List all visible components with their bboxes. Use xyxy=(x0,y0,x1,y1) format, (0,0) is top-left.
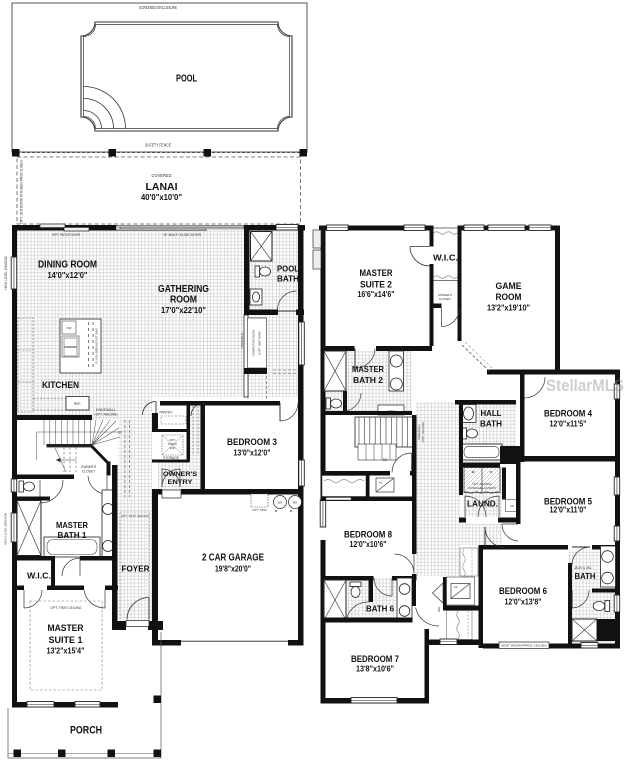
svg-text:OPT. TRAY CEILING: OPT. TRAY CEILING xyxy=(121,514,150,518)
svg-text:POOL: POOL xyxy=(176,73,197,85)
svg-text:BATH 1: BATH 1 xyxy=(58,530,87,540)
svg-text:OWNER'S: OWNER'S xyxy=(81,465,97,469)
svg-text:ROOM: ROOM xyxy=(496,292,522,302)
svg-text:SCREENED ENCLOSURE: SCREENED ENCLOSURE xyxy=(139,5,177,10)
svg-text:SUITE 2: SUITE 2 xyxy=(360,280,392,290)
svg-text:KNEEWALL: KNEEWALL xyxy=(240,332,244,349)
svg-text:ENTRY: ENTRY xyxy=(168,479,194,486)
svg-text:OWNER'S: OWNER'S xyxy=(163,471,198,478)
svg-text:12'0"x13'8": 12'0"x13'8" xyxy=(505,597,542,607)
svg-text:FLUSH BREAKFAST BAR: FLUSH BREAKFAST BAR xyxy=(95,328,99,364)
svg-text:HIGH LEVEL WINDOW: HIGH LEVEL WINDOW xyxy=(4,513,8,545)
svg-text:BATH 2: BATH 2 xyxy=(353,375,383,385)
svg-text:MASTER: MASTER xyxy=(360,268,393,278)
svg-text:OPT. TRAY CEILING: OPT. TRAY CEILING xyxy=(51,606,83,610)
svg-text:HIGH LEVEL WINDOW: HIGH LEVEL WINDOW xyxy=(4,256,8,290)
svg-text:KITCHEN: KITCHEN xyxy=(42,380,79,391)
svg-text:(OPT. RAILING): (OPT. RAILING) xyxy=(95,413,118,417)
svg-text:CLOSET: CLOSET xyxy=(82,470,95,474)
svg-text:WH: WH xyxy=(293,501,298,505)
svg-text:LIN: LIN xyxy=(510,504,514,508)
svg-text:BATH: BATH xyxy=(480,419,502,429)
svg-text:BEDROOM 6: BEDROOM 6 xyxy=(499,586,547,597)
svg-text:OPT. SINK: OPT. SINK xyxy=(252,508,267,512)
svg-text:W/D: W/D xyxy=(170,446,176,450)
svg-text:ROOM: ROOM xyxy=(170,295,197,306)
svg-text:W: W xyxy=(472,470,475,474)
svg-text:2 CAR GARAGE: 2 CAR GARAGE xyxy=(202,553,264,564)
svg-text:OPT. PATIO DOOR: OPT. PATIO DOOR xyxy=(52,233,80,237)
svg-text:40'0"x10'0": 40'0"x10'0" xyxy=(141,192,182,202)
svg-text:BATH: BATH xyxy=(575,571,596,581)
svg-text:SUITE 1: SUITE 1 xyxy=(49,635,83,645)
svg-text:KNEEWALL: KNEEWALL xyxy=(96,408,116,412)
svg-text:COVERED: COVERED xyxy=(152,173,172,178)
svg-text:LAUND.: LAUND. xyxy=(467,499,498,509)
svg-text:GAME: GAME xyxy=(496,281,522,291)
svg-text:STORAGE/LAUNDRY: STORAGE/LAUNDRY xyxy=(468,486,497,490)
svg-text:COMPUTER NOOK: COMPUTER NOOK xyxy=(252,330,256,357)
svg-text:13'2"x15'4": 13'2"x15'4" xyxy=(47,646,85,656)
svg-text:UP: UP xyxy=(118,431,123,435)
svg-text:MASTER: MASTER xyxy=(56,520,88,530)
svg-text:JACK & JILL: JACK & JILL xyxy=(574,566,592,570)
svg-text:12'0"x11'5": 12'0"x11'5" xyxy=(550,419,587,429)
svg-text:12'0"x11'0": 12'0"x11'0" xyxy=(550,505,587,515)
svg-text:13'8"x10'6": 13'8"x10'6" xyxy=(356,664,394,674)
svg-text:MASTER: MASTER xyxy=(48,623,84,633)
svg-text:DW: DW xyxy=(67,326,72,330)
svg-text:10' MULTI-SLIDE DOOR: 10' MULTI-SLIDE DOOR xyxy=(163,233,201,237)
svg-text:HALL: HALL xyxy=(481,408,502,418)
svg-text:SEAT W/DROPPED CEILING: SEAT W/DROPPED CEILING xyxy=(501,644,548,648)
svg-text:19'8"x20'0": 19'8"x20'0" xyxy=(215,564,251,574)
svg-text:CLOSET: CLOSET xyxy=(439,297,451,301)
svg-text:StellarMLS: StellarMLS xyxy=(546,377,624,395)
svg-text:FOYER: FOYER xyxy=(122,564,150,574)
svg-text:BATH: BATH xyxy=(277,274,299,284)
svg-text:13'2"x19'10": 13'2"x19'10" xyxy=(487,303,530,313)
svg-text:DN: DN xyxy=(383,458,388,462)
svg-text:GATHERING: GATHERING xyxy=(158,284,209,295)
svg-text:POOL: POOL xyxy=(277,264,299,274)
svg-text:17'0"x22'10": 17'0"x22'10" xyxy=(161,305,206,315)
svg-text:MASTER: MASTER xyxy=(352,364,384,374)
svg-text:16'6"x14'6": 16'6"x14'6" xyxy=(358,289,395,299)
svg-text:BATH 6: BATH 6 xyxy=(366,604,394,614)
svg-text:PANTRY: PANTRY xyxy=(159,411,173,415)
svg-text:PORCH: PORCH xyxy=(70,725,102,737)
svg-text:(OPT. WET BAR): (OPT. WET BAR) xyxy=(258,331,262,354)
svg-text:REF.: REF. xyxy=(74,402,81,406)
svg-text:12'0"x10'6": 12'0"x10'6" xyxy=(350,539,387,549)
svg-text:DINING ROOM: DINING ROOM xyxy=(38,260,97,271)
svg-text:OPT. OUTDOOR KITCHEN PROV./LIN: OPT. OUTDOOR KITCHEN PROV./LINES xyxy=(20,159,24,223)
svg-text:STORAGE: STORAGE xyxy=(163,456,179,460)
svg-text:SAFETY FENCE: SAFETY FENCE xyxy=(145,143,171,148)
svg-text:W.I.C.: W.I.C. xyxy=(433,254,458,263)
svg-text:WH: WH xyxy=(278,501,283,505)
svg-text:13'0"x12'0": 13'0"x12'0" xyxy=(234,448,271,458)
svg-text:W.I.C.: W.I.C. xyxy=(27,572,51,581)
svg-text:(OPT. RAILING): (OPT. RAILING) xyxy=(421,422,425,443)
svg-text:BEDROOM 3: BEDROOM 3 xyxy=(227,437,277,448)
svg-text:14'0"x12'0": 14'0"x12'0" xyxy=(48,270,88,280)
